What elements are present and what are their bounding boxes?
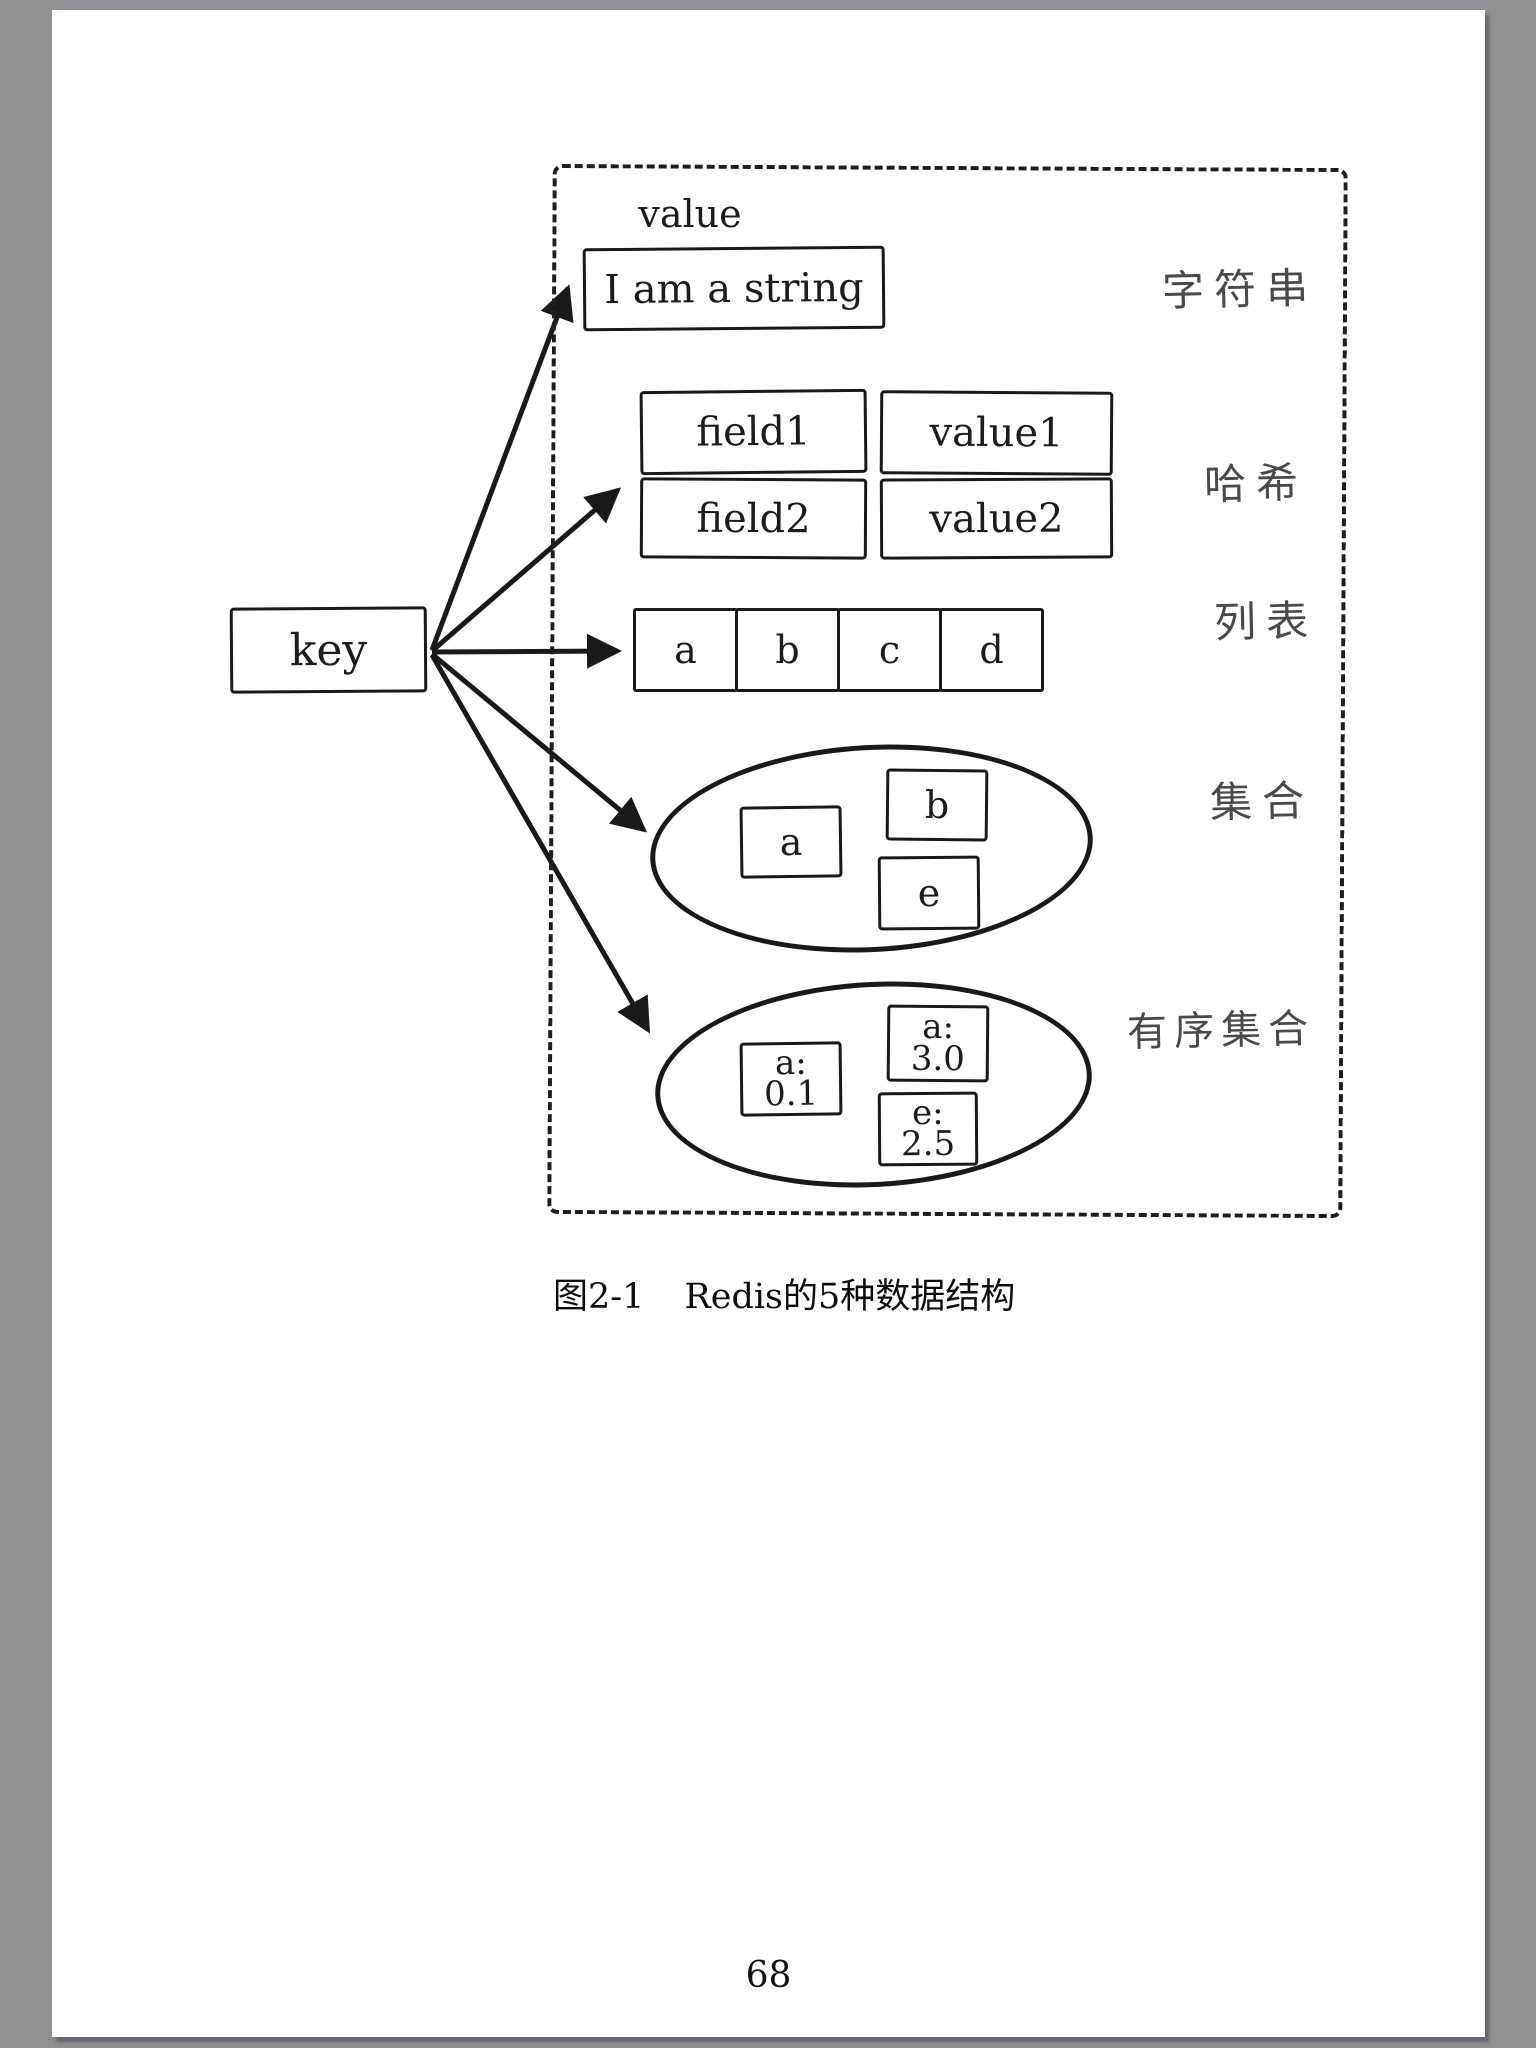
figure-caption-label: 图2-1 <box>553 1268 644 1319</box>
list-row: a b c d <box>633 608 1044 692</box>
list-cell-c: c <box>837 608 942 692</box>
hash-value1-cell: value1 <box>880 390 1114 476</box>
list-item-text: c <box>879 628 900 672</box>
key-box: key <box>230 606 428 693</box>
hash-value2-cell: value2 <box>880 477 1113 559</box>
arrow-to-string <box>432 288 568 650</box>
hash-value2-text: value2 <box>929 495 1063 542</box>
zset-score-text: 3.0 <box>911 1043 965 1075</box>
category-label-zset: 有序集合 <box>1126 996 1315 1058</box>
zset-score-text: 0.1 <box>764 1079 818 1111</box>
list-cell-a: a <box>633 608 738 692</box>
set-member-a: a <box>740 805 843 878</box>
value-header-label: value <box>600 192 780 236</box>
zset-member-a-3.0: a: 3.0 <box>887 1005 990 1083</box>
category-label-set: 集合 <box>1209 767 1314 830</box>
string-value-text: I am a string <box>604 264 864 312</box>
redis-data-structures-figure: value key I am a string field1 value1 fi… <box>52 10 1485 2037</box>
category-label-hash: 哈希 <box>1203 449 1308 512</box>
list-item-text: b <box>775 628 799 672</box>
zset-score-text: 2.5 <box>901 1129 955 1161</box>
key-label: key <box>290 624 368 676</box>
hash-field2-text: field2 <box>696 495 810 542</box>
set-member-b: b <box>886 768 989 841</box>
string-value-box: I am a string <box>583 246 886 332</box>
set-member-text: b <box>925 783 950 827</box>
reader-background: value key I am a string field1 value1 fi… <box>0 0 1536 2048</box>
hash-field2-cell: field2 <box>640 477 867 559</box>
hash-field1-text: field1 <box>696 408 811 455</box>
set-member-text: a <box>779 820 802 864</box>
list-cell-d: d <box>939 608 1044 692</box>
list-item-text: a <box>674 628 697 672</box>
list-item-text: d <box>979 628 1003 672</box>
category-label-string: 字符串 <box>1161 254 1318 318</box>
figure-caption-title: Redis的5种数据结构 <box>684 1268 1015 1319</box>
page-number: 68 <box>52 1955 1485 1996</box>
zset-member-e-2.5: e: 2.5 <box>878 1092 979 1167</box>
list-cell-b: b <box>735 608 840 692</box>
set-member-text: e <box>918 871 941 915</box>
set-member-e: e <box>878 856 981 931</box>
hash-value1-text: value1 <box>929 410 1063 457</box>
zset-member-a-0.1: a: 0.1 <box>740 1041 843 1116</box>
figure-caption: 图2-1 Redis的5种数据结构 <box>553 1268 1015 1319</box>
book-page: value key I am a string field1 value1 fi… <box>52 10 1485 2037</box>
category-label-list: 列表 <box>1213 587 1318 650</box>
hash-field1-cell: field1 <box>640 389 868 475</box>
